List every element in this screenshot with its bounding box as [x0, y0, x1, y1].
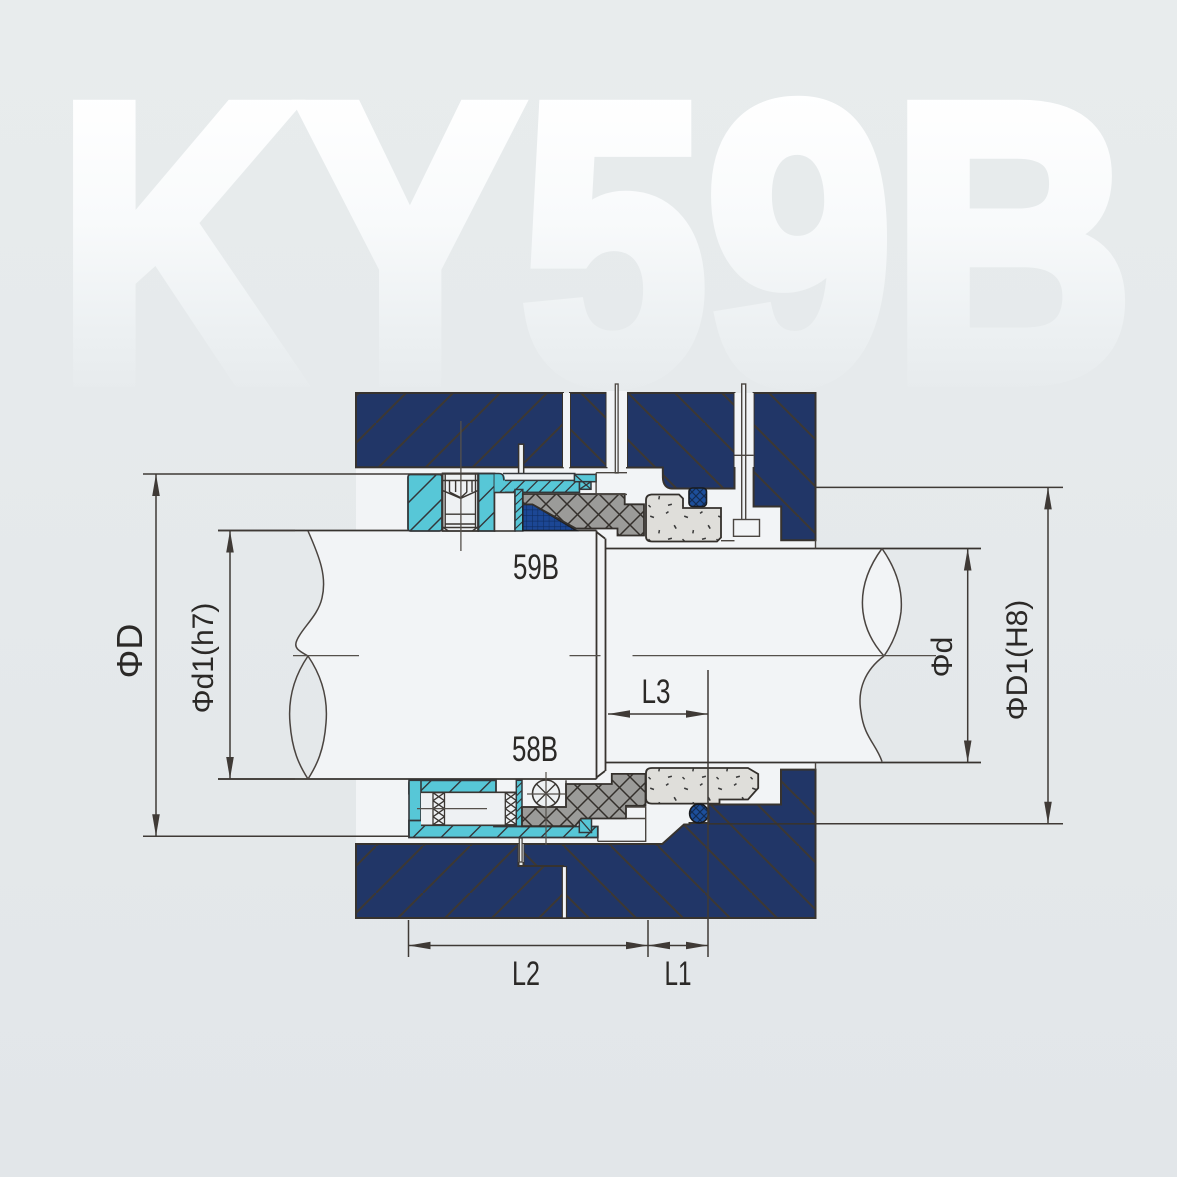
svg-text:Φd1(h7): Φd1(h7) [187, 603, 220, 714]
svg-text:58B: 58B [512, 730, 558, 769]
svg-text:L3: L3 [642, 673, 671, 711]
svg-text:ΦD1(H8): ΦD1(H8) [1001, 600, 1034, 721]
svg-text:Φd: Φd [926, 637, 959, 678]
svg-text:L1: L1 [665, 955, 692, 993]
svg-text:59B: 59B [513, 548, 559, 587]
svg-text:L2: L2 [512, 955, 540, 993]
svg-text:ΦD: ΦD [109, 624, 150, 679]
